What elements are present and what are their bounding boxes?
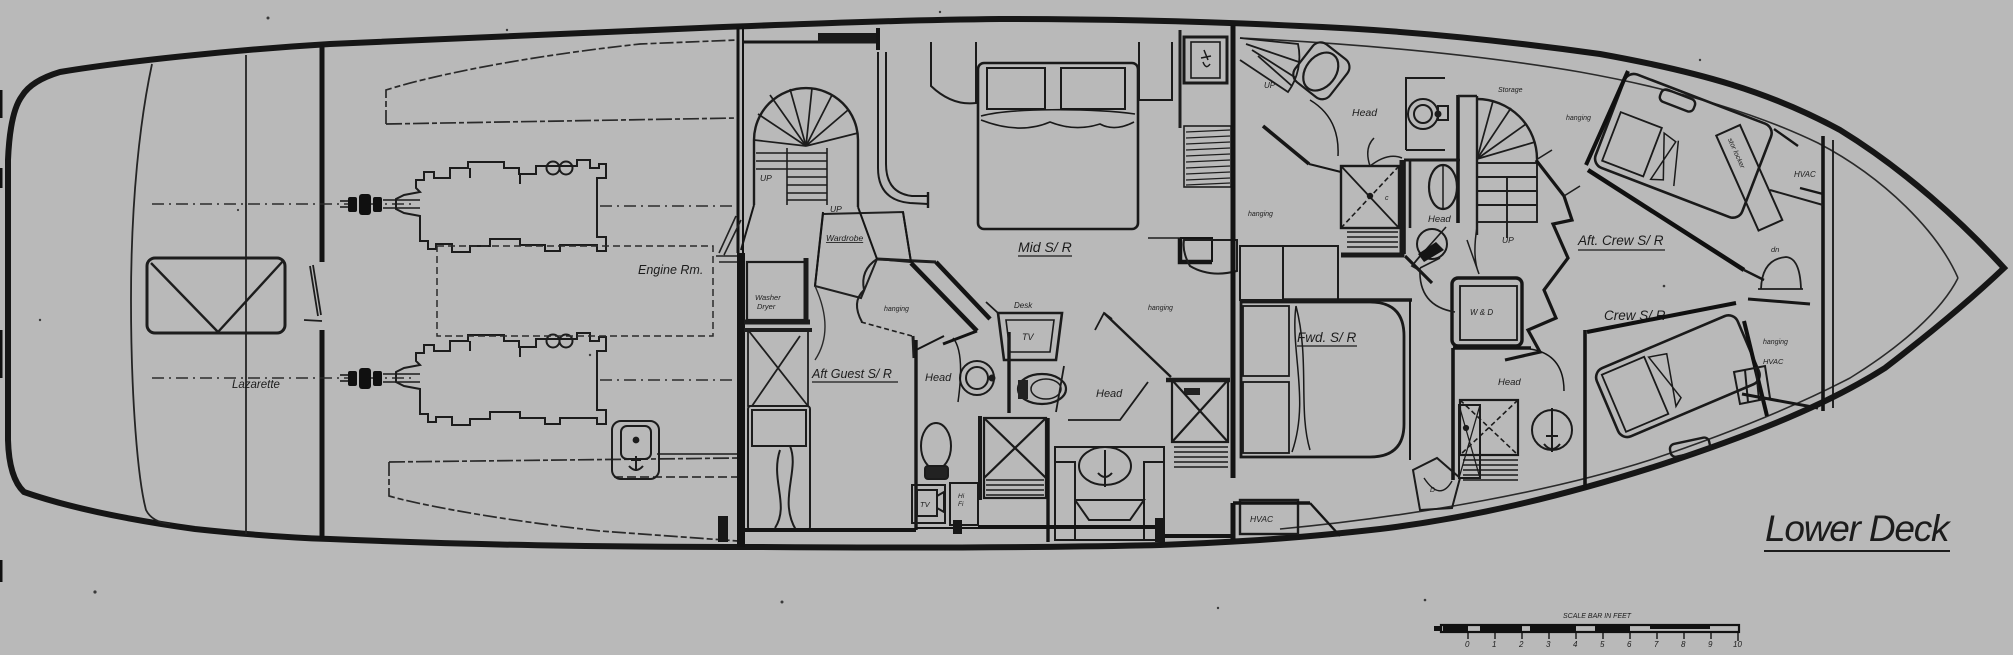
svg-text:0: 0 bbox=[1465, 640, 1470, 649]
svg-text:2: 2 bbox=[1518, 640, 1524, 649]
svg-text:dn: dn bbox=[1771, 245, 1779, 254]
svg-text:Fwd. S/ R: Fwd. S/ R bbox=[1297, 330, 1357, 345]
svg-text:HVAC: HVAC bbox=[1794, 170, 1816, 179]
svg-text:Washer: Washer bbox=[755, 293, 781, 302]
svg-text:hanging: hanging bbox=[1566, 115, 1591, 122]
svg-text:W & D: W & D bbox=[1470, 308, 1493, 317]
svg-text:hanging: hanging bbox=[1763, 339, 1788, 346]
svg-text:TV: TV bbox=[1022, 332, 1034, 342]
svg-text:D: D bbox=[1430, 487, 1435, 494]
svg-text:Hi: Hi bbox=[958, 493, 965, 500]
svg-text:Engine Rm.: Engine Rm. bbox=[638, 263, 703, 277]
svg-text:6: 6 bbox=[1627, 640, 1632, 649]
svg-text:Aft Guest S/ R: Aft Guest S/ R bbox=[811, 367, 892, 381]
svg-text:3: 3 bbox=[1546, 640, 1551, 649]
svg-text:8: 8 bbox=[1681, 640, 1686, 649]
svg-text:Wardrobe: Wardrobe bbox=[826, 233, 863, 243]
svg-text:Desk: Desk bbox=[1014, 301, 1033, 310]
svg-text:HVAC: HVAC bbox=[1250, 514, 1274, 524]
svg-text:c: c bbox=[1385, 195, 1389, 202]
svg-text:UP: UP bbox=[1502, 235, 1514, 245]
svg-text:1: 1 bbox=[1492, 640, 1496, 649]
svg-text:Storage: Storage bbox=[1498, 87, 1523, 94]
svg-text:Fi: Fi bbox=[958, 501, 964, 508]
svg-text:Head: Head bbox=[1428, 214, 1451, 225]
svg-text:Head: Head bbox=[925, 372, 952, 384]
svg-text:hanging: hanging bbox=[1248, 211, 1273, 218]
svg-text:SCALE BAR IN FEET: SCALE BAR IN FEET bbox=[1563, 613, 1632, 620]
svg-text:hanging: hanging bbox=[884, 306, 909, 313]
svg-text:10: 10 bbox=[1733, 640, 1742, 649]
svg-text:Mid S/ R: Mid S/ R bbox=[1018, 239, 1072, 255]
svg-text:HVAC: HVAC bbox=[1763, 357, 1784, 366]
svg-text:hanging: hanging bbox=[1148, 305, 1173, 312]
svg-text:Lazarette: Lazarette bbox=[232, 379, 280, 391]
svg-text:TV: TV bbox=[920, 500, 931, 509]
svg-text:UP: UP bbox=[1264, 81, 1276, 90]
svg-text:Lower Deck: Lower Deck bbox=[1765, 508, 1952, 549]
svg-text:Dryer: Dryer bbox=[757, 302, 776, 311]
svg-text:UP: UP bbox=[760, 173, 772, 183]
svg-text:5: 5 bbox=[1600, 640, 1605, 649]
svg-text:Head: Head bbox=[1498, 377, 1521, 388]
svg-text:9: 9 bbox=[1708, 640, 1713, 649]
svg-text:Head: Head bbox=[1096, 388, 1123, 400]
svg-text:7: 7 bbox=[1654, 640, 1659, 649]
svg-text:4: 4 bbox=[1573, 640, 1578, 649]
svg-text:UP: UP bbox=[830, 204, 842, 214]
svg-text:Head: Head bbox=[1352, 107, 1378, 119]
svg-text:Aft. Crew S/ R: Aft. Crew S/ R bbox=[1577, 233, 1664, 248]
